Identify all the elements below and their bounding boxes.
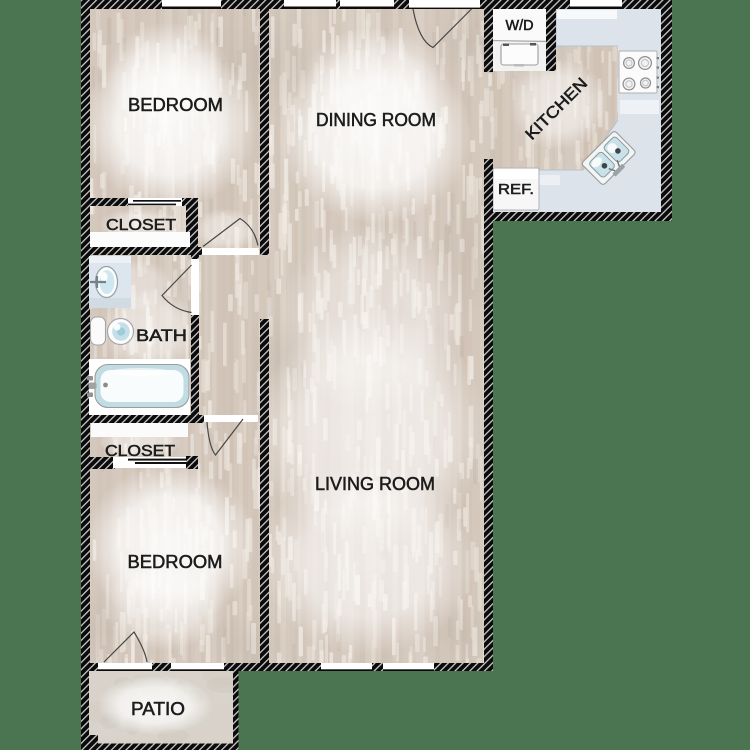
svg-text:REF.: REF. — [498, 181, 534, 198]
svg-text:CLOSET: CLOSET — [105, 443, 175, 460]
svg-text:DINING ROOM: DINING ROOM — [316, 110, 436, 130]
svg-text:LIVING ROOM: LIVING ROOM — [315, 474, 435, 494]
svg-text:BEDROOM: BEDROOM — [128, 95, 223, 115]
svg-text:BATH: BATH — [136, 326, 187, 345]
svg-text:W/D: W/D — [506, 17, 534, 34]
svg-text:CLOSET: CLOSET — [106, 217, 176, 234]
svg-text:BEDROOM: BEDROOM — [128, 552, 223, 572]
svg-text:PATIO: PATIO — [131, 699, 185, 719]
